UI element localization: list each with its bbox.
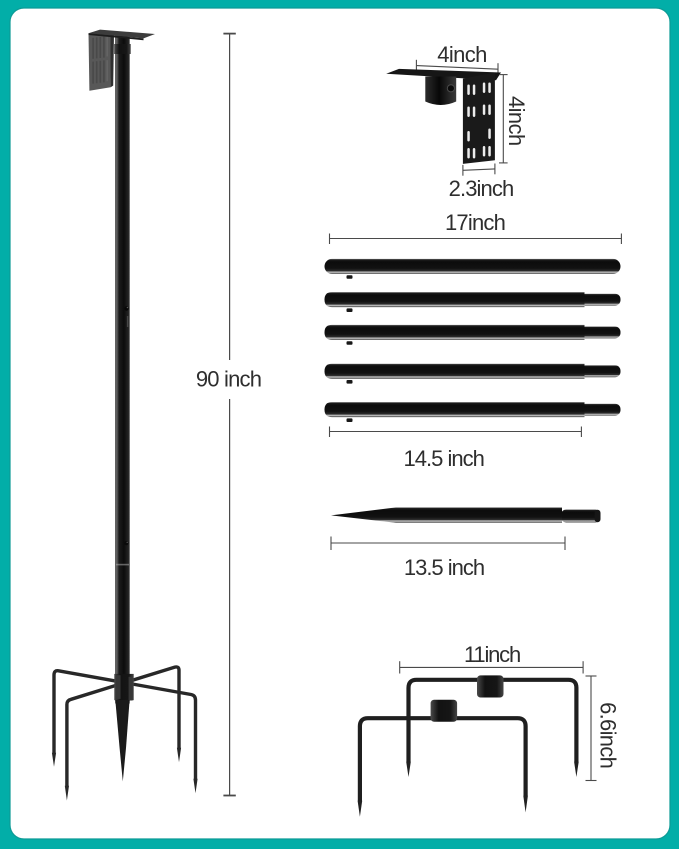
svg-text:4inch: 4inch [437, 42, 487, 67]
svg-text:6.6inch: 6.6inch [596, 702, 621, 768]
svg-text:90 inch: 90 inch [196, 367, 261, 392]
svg-text:14.5 inch: 14.5 inch [404, 446, 484, 471]
svg-text:11inch: 11inch [464, 642, 520, 667]
svg-text:4inch: 4inch [504, 96, 529, 146]
svg-text:17inch: 17inch [445, 210, 505, 235]
svg-text:2.3inch: 2.3inch [449, 176, 514, 201]
svg-text:13.5 inch: 13.5 inch [404, 555, 484, 580]
